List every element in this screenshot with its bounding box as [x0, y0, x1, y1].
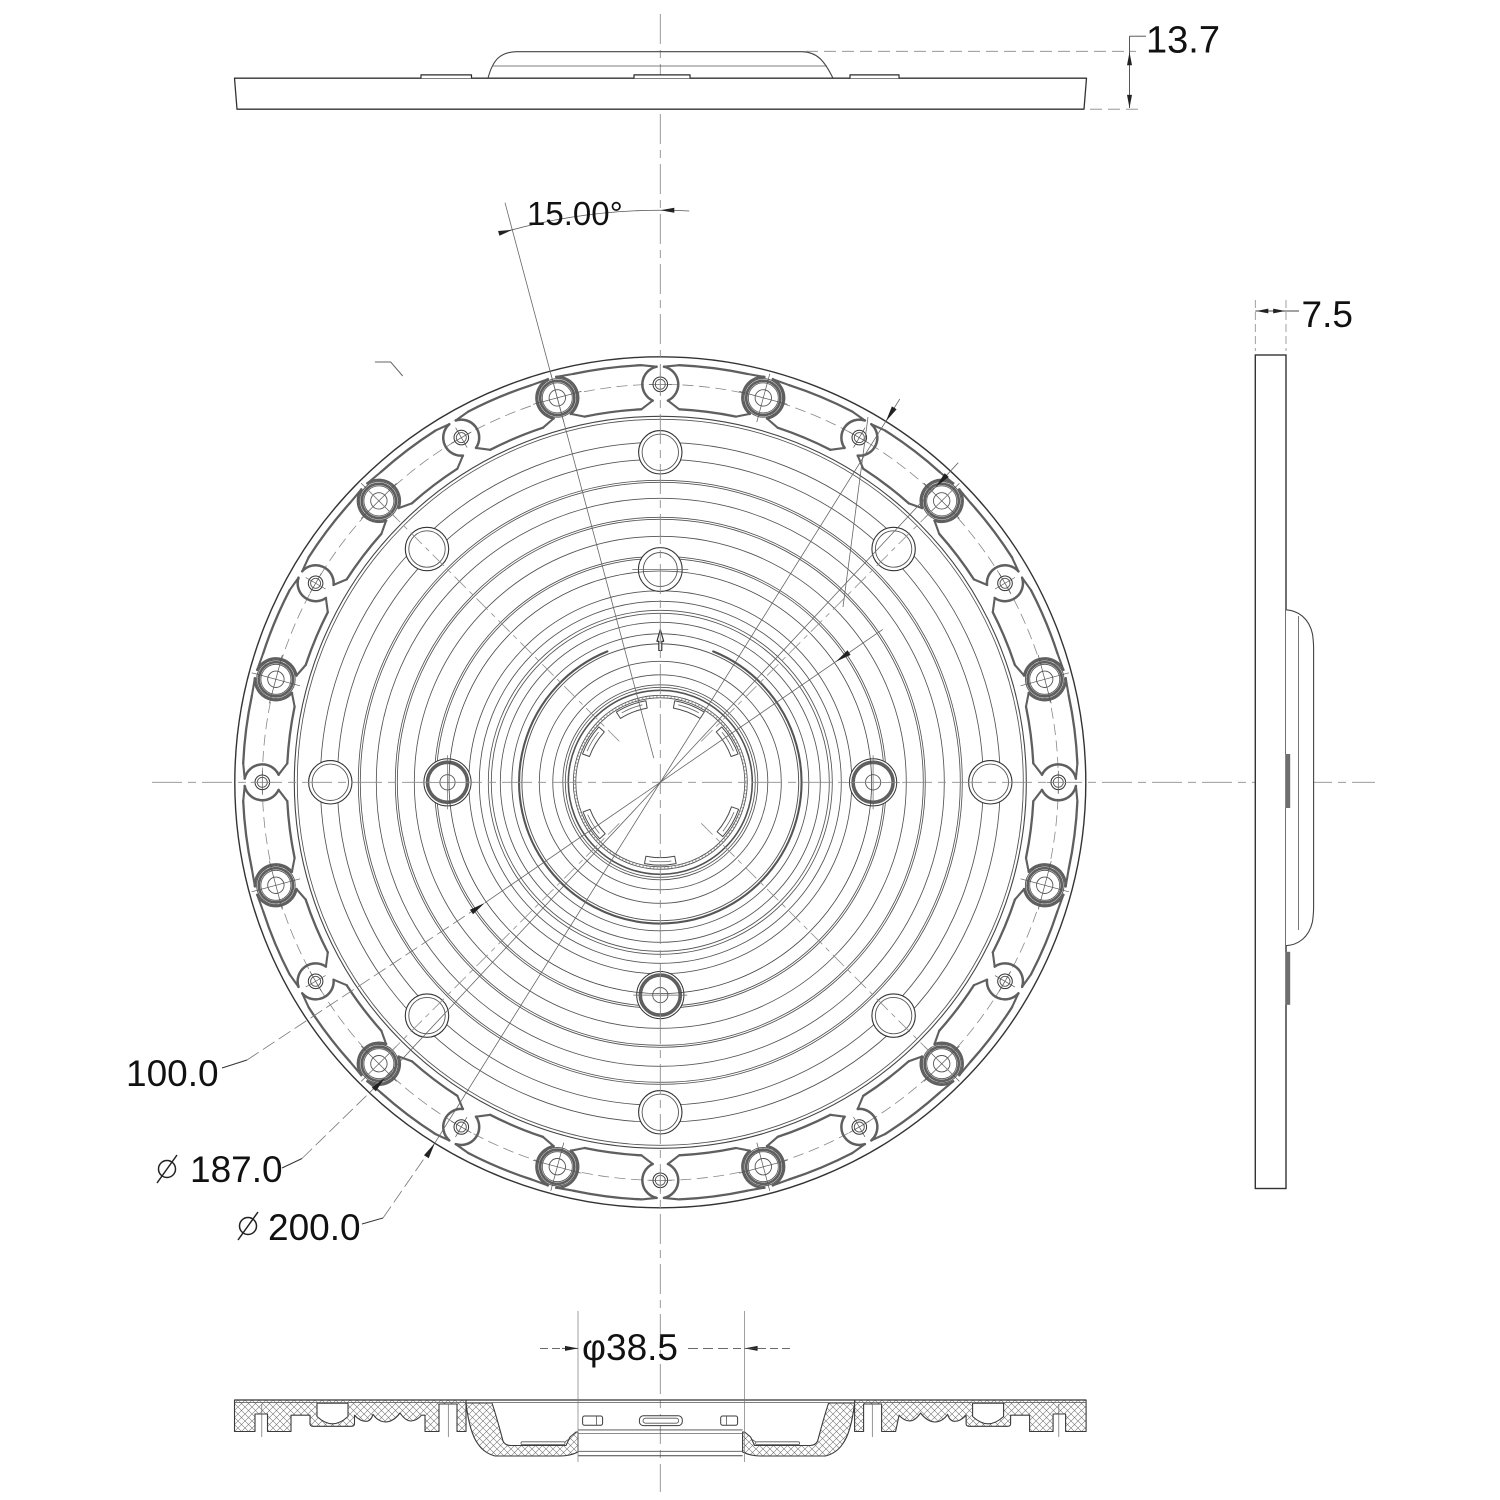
- svg-text:13.7: 13.7: [1146, 20, 1220, 62]
- svg-text:200.0: 200.0: [268, 1207, 361, 1248]
- svg-text:φ38.5: φ38.5: [582, 1327, 678, 1368]
- svg-text:7.5: 7.5: [1302, 294, 1353, 335]
- svg-text:15.00°: 15.00°: [527, 195, 623, 232]
- svg-text:100.0: 100.0: [126, 1053, 219, 1094]
- svg-text:187.0: 187.0: [190, 1149, 283, 1190]
